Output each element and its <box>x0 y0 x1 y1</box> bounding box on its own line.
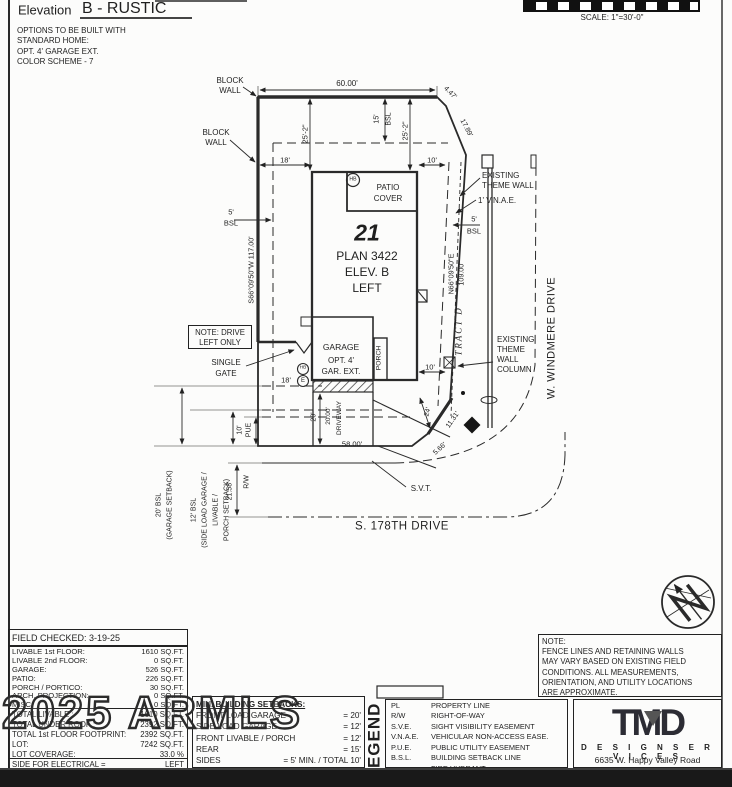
area-row-label: LIVABLE 1st FLOOR: <box>12 647 85 656</box>
dim-10-column: 10' <box>425 363 435 371</box>
theme-wall-column-label: EXISTING <box>497 336 534 344</box>
setback-12-label: LIVABLE / <box>213 494 220 526</box>
drive-note-line: NOTE: DRIVE <box>189 328 251 338</box>
legend-symbol: B.S.L. <box>389 753 431 762</box>
block-wall-left-label: WALL <box>205 139 227 147</box>
options-line: OPT. 4' GARAGE EXT. <box>17 48 99 56</box>
dim-60: 60.00' <box>336 80 358 88</box>
legend-desc: RIGHT-OF-WAY <box>431 711 564 720</box>
area-row-value: 1610 SQ.FT. <box>141 647 184 656</box>
dim-20: 20' <box>311 412 318 421</box>
vnae-label: 1' V.N.A.E. <box>478 197 516 205</box>
bsl-left-label: BSL <box>224 219 238 227</box>
options-line: OPTIONS TO BE BUILT WITH <box>17 27 126 35</box>
legend-symbol: R/W <box>389 711 431 720</box>
setback-row-label: SIDES <box>196 756 221 765</box>
total-row-label: LOT: <box>12 740 28 749</box>
dim-10-top: 10' <box>427 156 437 164</box>
setback-row-value: = 20' <box>343 711 361 720</box>
block-wall-top-label: BLOCK <box>216 77 243 85</box>
block-wall-left-label: BLOCK <box>202 129 229 137</box>
corner-column-marker <box>464 417 481 434</box>
plan-name: PLAN 3422 <box>336 250 397 262</box>
theme-wall-column-label: COLUMN <box>497 366 532 374</box>
street-178th-label: S. 178TH DRIVE <box>355 521 449 533</box>
setback-12-label: (SIDE LOAD GARAGE / <box>202 472 209 547</box>
bsl-15-label: BSL <box>386 112 393 125</box>
note-line: CONDITIONS. ALL MEASUREMENTS, <box>539 668 721 678</box>
bsl-right-label: BSL <box>467 227 481 235</box>
setback-row-label: REAR <box>196 745 219 754</box>
svt-label: S.V.T. <box>411 485 432 493</box>
scale-label: SCALE: 1"=30'-0" <box>580 14 643 22</box>
elevation-value: B - RUSTIC <box>82 1 166 17</box>
garage-option-label: GAR. EXT. <box>322 368 361 376</box>
legend-symbol: S.V.E. <box>389 722 431 731</box>
note-line: FENCE LINES AND RETAINING WALLS <box>539 647 721 657</box>
setback-row-value: = 15' <box>343 745 361 754</box>
scan-bottom-bar <box>0 768 732 787</box>
area-row-label: GARAGE: <box>12 665 47 674</box>
elevation-code: ELEV. B <box>345 266 389 278</box>
legend-desc: VEHICULAR NON-ACCESS EASE. <box>431 732 564 741</box>
drive-note-line: LEFT ONLY <box>189 338 251 348</box>
setback-row-value: = 5' MIN. / TOTAL 10' <box>283 756 361 765</box>
options-line: STANDARD HOME: <box>17 37 89 45</box>
dim-5-right: 5' <box>471 215 477 223</box>
single-gate-label: GATE <box>215 370 236 378</box>
bearing-left: S66°09'50"W 117.00' <box>247 236 254 303</box>
legend-desc: SIGHT VISIBILITY EASEMENT <box>431 722 564 731</box>
area-row-label: LIVABLE 2nd FLOOR: <box>12 656 87 665</box>
north-arrow <box>662 576 714 628</box>
bearing-right: N66°09'50"E <box>447 254 454 295</box>
armls-watermark: 2025 ARMLS <box>2 690 303 735</box>
legend-desc: PROPERTY LINE <box>431 701 564 710</box>
legend-symbol: P.U.E. <box>389 743 431 752</box>
total-row-value: 7242 SQ.FT. <box>140 740 184 749</box>
legend-desc: PUBLIC UTILITY EASEMENT <box>431 743 564 752</box>
pue-label: PUE <box>246 423 253 437</box>
setback-row-value: = 12' <box>343 734 361 743</box>
field-checked-box: FIELD CHECKED: 3-19-25 <box>8 629 188 646</box>
lot-number: 21 <box>354 222 380 245</box>
setback-20-label: (GARAGE SETBACK) <box>167 470 174 539</box>
existing-theme-wall-label: EXISTING <box>482 172 519 180</box>
garage-apron-hatch <box>313 381 373 392</box>
plot-plan-page: Elevation B - RUSTIC OPTIONS TO BE BUILT… <box>0 0 732 787</box>
theme-wall-column-label: THEME <box>497 346 525 354</box>
gate-fence <box>258 342 312 353</box>
theme-wall-column-label: WALL <box>497 356 519 364</box>
patio-cover-label: PATIO <box>377 184 400 192</box>
dim-10-pue: 10' <box>237 425 244 434</box>
utility-markers <box>298 174 360 387</box>
patio-cover-label: COVER <box>374 195 402 203</box>
tract-d-label: TRACT D <box>455 306 464 356</box>
electrical-marker: E <box>301 378 305 384</box>
driveway-label: DRIVEWAY <box>337 401 344 435</box>
note-line: NOTE: <box>539 637 721 647</box>
legend-symbol: PL <box>389 701 431 710</box>
dim-18-top: 18' <box>280 156 290 164</box>
existing-theme-wall-label: THEME WALL <box>482 182 534 190</box>
block-wall-top-label: WALL <box>219 87 241 95</box>
setback-20-label: 20' BSL <box>156 493 163 517</box>
drive-note-box: NOTE: DRIVE LEFT ONLY <box>188 325 252 349</box>
setback-row-value: = 12' <box>343 722 361 731</box>
windmere-drive-label: W. WINDMERE DRIVE <box>547 277 558 399</box>
hose-bib-marker: HB <box>300 367 307 372</box>
field-checked-label: FIELD CHECKED: 3-19-25 <box>9 630 187 645</box>
elevation-label: Elevation <box>18 4 71 17</box>
dim-15: 15' <box>374 114 381 123</box>
firm-title-block: TMD D E S I G N S E R V I C E S 6635 W. … <box>573 699 722 768</box>
hose-bib-marker: HB <box>349 177 356 182</box>
note-line: ARE APPROXIMATE. <box>539 688 721 698</box>
note-box: NOTE: FENCE LINES AND RETAINING WALLS MA… <box>538 634 722 697</box>
setback-12-label: PORCH SETBACK) <box>224 479 231 541</box>
area-row-label: PATIO: <box>12 674 36 683</box>
firm-address: 6635 W. Happy Valley Road <box>574 755 721 765</box>
area-row-value: 0 SQ.FT. <box>154 656 184 665</box>
single-gate-label: SINGLE <box>211 359 240 367</box>
side-label: LEFT <box>352 282 381 294</box>
garage-label: GARAGE <box>323 343 359 352</box>
setback-12-label: 12' BSL <box>191 498 198 522</box>
dim-58: 58.00' <box>342 440 362 448</box>
porch-label: PORCH <box>377 346 384 371</box>
dim-5-left: 5' <box>228 208 234 216</box>
legend-table: PLPROPERTY LINE R/WRIGHT-OF-WAY S.V.E.SI… <box>385 699 568 768</box>
options-line: COLOR SCHEME - 7 <box>17 58 93 66</box>
plan-fragment-box <box>377 686 443 698</box>
area-row-value: 526 SQ.FT. <box>146 665 184 674</box>
dim-109: 109.00' <box>457 262 464 285</box>
tmd-logo-triangle-icon <box>644 711 662 726</box>
garage-option-label: OPT. 4' <box>328 357 354 365</box>
legend-desc: BUILDING SETBACK LINE <box>431 753 564 762</box>
scale-bar <box>523 0 700 12</box>
rw-label: R/W <box>244 475 251 489</box>
note-line: ORIENTATION, AND UTILITY LOCATIONS <box>539 678 721 688</box>
dim-25-2-right: 25'-2" <box>401 121 409 140</box>
legend-symbol: V.N.A.E. <box>389 732 431 741</box>
dim-20-00: 20.00' <box>326 407 333 425</box>
dim-25-2-left: 25'-2" <box>301 124 309 143</box>
dim-18-gate: 18' <box>281 376 291 384</box>
area-row-value: 226 SQ.FT. <box>146 674 184 683</box>
note-line: MAY VARY BASED ON EXISTING FIELD <box>539 657 721 667</box>
